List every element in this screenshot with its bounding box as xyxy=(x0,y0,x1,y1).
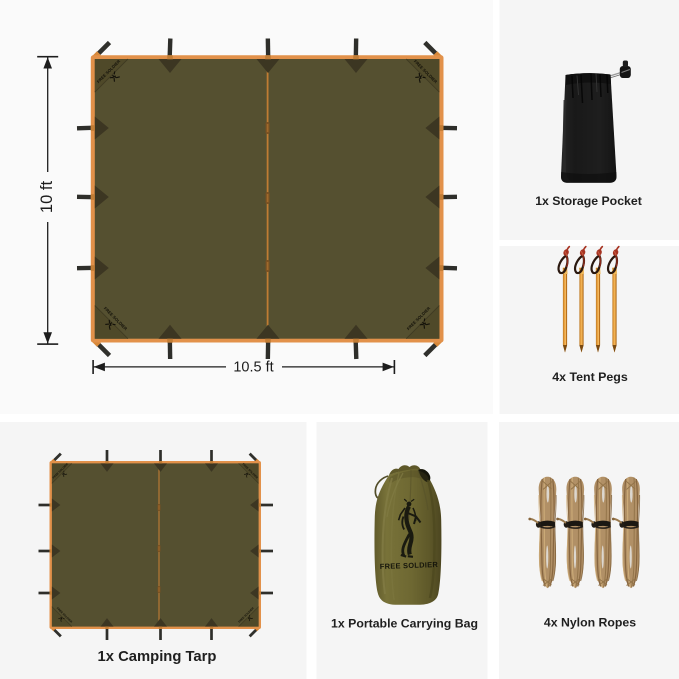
svg-text:10.5 ft: 10.5 ft xyxy=(233,359,273,375)
svg-text:1x Storage Pocket: 1x Storage Pocket xyxy=(535,194,642,208)
svg-text:1x Portable Carrying Bag: 1x Portable Carrying Bag xyxy=(331,617,478,631)
svg-text:4x Nylon Ropes: 4x Nylon Ropes xyxy=(544,616,636,630)
svg-text:4x Tent Pegs: 4x Tent Pegs xyxy=(552,370,628,384)
svg-text:10 ft: 10 ft xyxy=(38,181,56,214)
svg-text:1x Camping Tarp: 1x Camping Tarp xyxy=(98,649,217,665)
